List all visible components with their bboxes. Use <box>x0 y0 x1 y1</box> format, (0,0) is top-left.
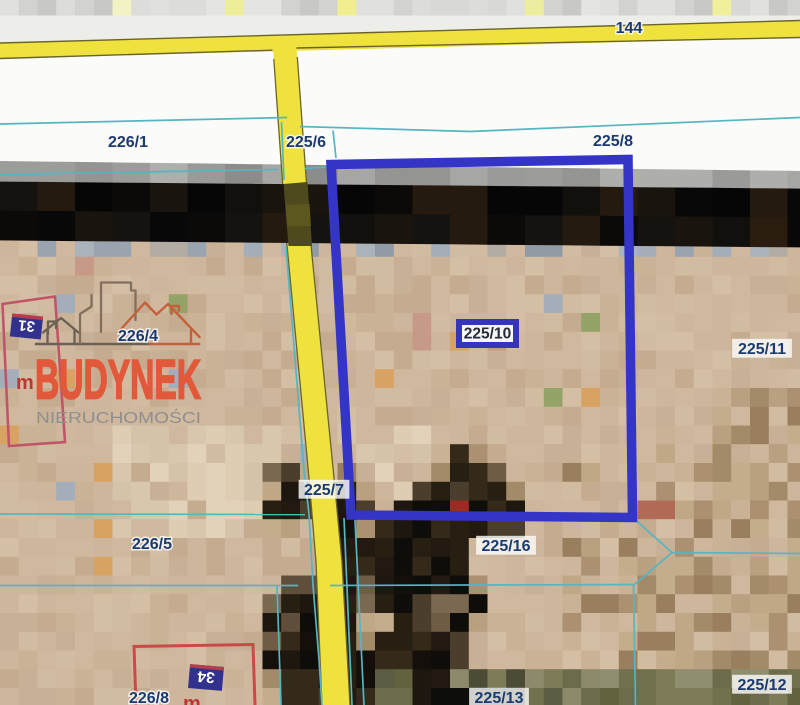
svg-text:34: 34 <box>196 667 215 685</box>
svg-text:225/11: 225/11 <box>738 341 786 358</box>
svg-text:m: m <box>183 693 201 705</box>
svg-text:NIERUCHOMOŚCI: NIERUCHOMOŚCI <box>36 409 201 427</box>
svg-text:m: m <box>16 372 34 394</box>
svg-text:226/5: 226/5 <box>132 536 172 553</box>
svg-text:225/8: 225/8 <box>593 133 633 150</box>
svg-text:226/8: 226/8 <box>129 690 169 705</box>
svg-text:225/12: 225/12 <box>738 677 787 694</box>
svg-text:225/7: 225/7 <box>304 482 344 499</box>
svg-text:225/10: 225/10 <box>464 326 511 343</box>
svg-text:225/13: 225/13 <box>475 690 524 705</box>
svg-text:226/1: 226/1 <box>108 134 148 151</box>
svg-text:BUDYNEK: BUDYNEK <box>35 348 201 411</box>
svg-text:144: 144 <box>616 20 643 37</box>
svg-text:226/4: 226/4 <box>118 328 158 345</box>
svg-text:225/16: 225/16 <box>482 538 531 555</box>
svg-text:31: 31 <box>17 316 35 335</box>
svg-text:225/6: 225/6 <box>286 134 326 151</box>
